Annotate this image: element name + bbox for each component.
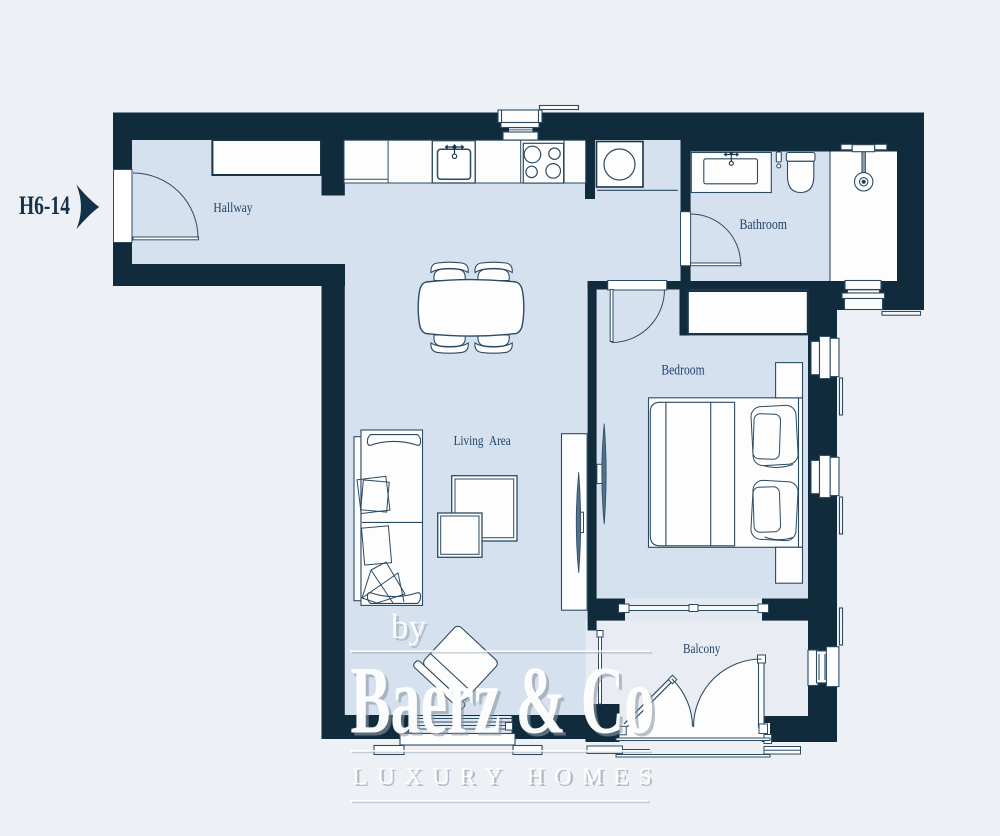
svg-text:Bedroom: Bedroom (661, 361, 704, 378)
svg-text:Bathroom: Bathroom (739, 216, 787, 232)
svg-text:by: by (391, 607, 427, 646)
svg-text:Balcony: Balcony (683, 641, 721, 656)
svg-text:LUXURY HOMES: LUXURY HOMES (352, 763, 661, 790)
svg-text:Hallway: Hallway (213, 200, 253, 215)
svg-text:H6-14: H6-14 (19, 191, 70, 219)
svg-text:Living Area: Living Area (454, 433, 511, 448)
svg-text:Baerz & Co: Baerz & Co (350, 649, 654, 754)
